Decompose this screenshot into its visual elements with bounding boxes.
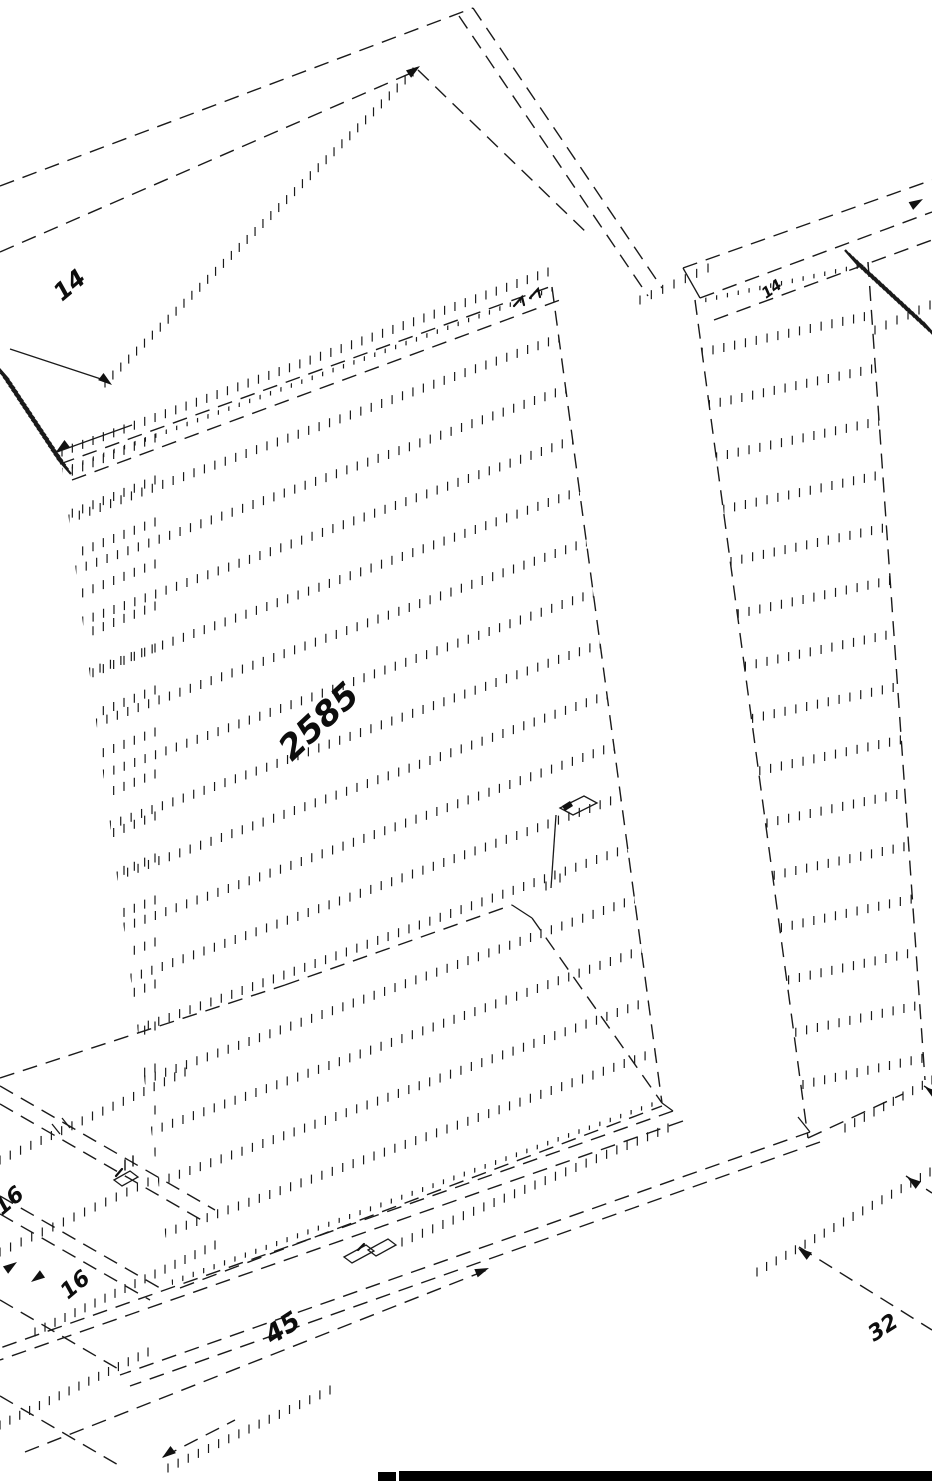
drawing-canvas: 14 14 2585 16 16 45 32 bbox=[0, 0, 932, 1481]
title-block-bar bbox=[378, 1471, 932, 1481]
isometric-drawing: 14 14 2585 16 16 45 32 bbox=[0, 0, 932, 1481]
bottom-bar bbox=[399, 1471, 932, 1481]
paper-background bbox=[0, 0, 932, 1481]
bottom-bar-segment bbox=[378, 1472, 396, 1481]
